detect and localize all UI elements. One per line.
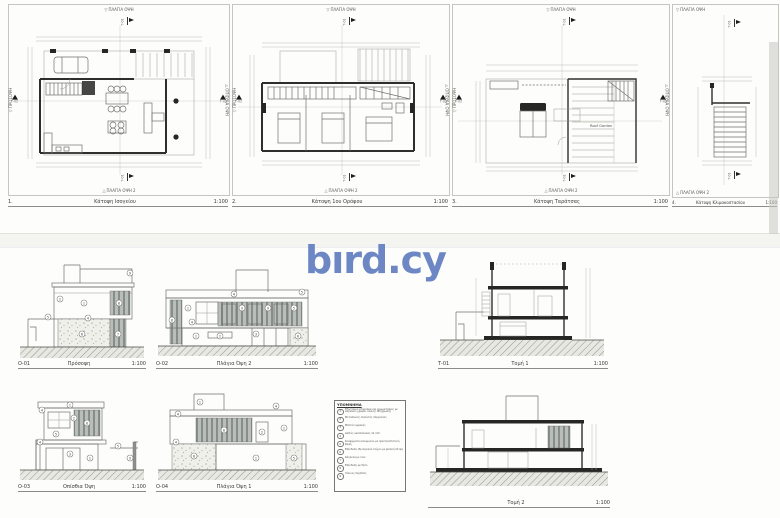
svg-text:6: 6 (297, 334, 299, 338)
elevation-title-o04: Ο-04 Πλάγια Όψη 1 1:100 (156, 484, 318, 492)
svg-text:4: 4 (175, 440, 177, 444)
svg-text:1: 1 (199, 400, 201, 404)
section-flag-label: Τ-01 (343, 174, 347, 181)
elevation-rear: 1 4 2 8 5 4 3 1 5 9 Ο-03 Οπίσθια Όψη 1:1… (18, 392, 146, 492)
triangle-down-icon: ▽ (546, 7, 549, 12)
plan-staircase: ▽ΠΛΑΓΙΑ ΟΨΗ Τ-01 Τ-01 △ΠΛΑΓΙΑ ΟΨΗ 2 (672, 4, 779, 198)
drawing-number: 1. (8, 199, 24, 205)
elevation-marker-top: ▽ΠΛΑΓΙΑ ΟΨΗ (676, 7, 705, 12)
legend-text: Μπετόν εμφανές (345, 425, 366, 428)
section-2-drawing (428, 388, 610, 500)
svg-text:4: 4 (177, 412, 179, 416)
drawing-scale: 1:100 (124, 361, 146, 367)
drawing-title: Κάτοψη 1ου Ορόφου (248, 199, 426, 205)
drawing-number: 3. (452, 199, 468, 205)
section-flag-label: Τ-01 (121, 174, 125, 181)
drawing-title: Τομή 2 (444, 500, 588, 506)
legend-item: 1Εξωτερικό επίχρισμα και χρωματισμός με … (337, 409, 403, 416)
section-marker-label: Τ-02 (220, 100, 227, 104)
staircase-plan-drawing (674, 15, 774, 185)
triangle-up-icon: △ (324, 188, 327, 193)
roof-garden-label: Roof Garden (590, 124, 612, 128)
drawing-scale: 1:100 (206, 199, 228, 205)
legend-item: 3Μπετόν εμφανές (337, 425, 403, 432)
marker-label: ΠΛΑΓΙΑ ΟΨΗ (680, 7, 705, 12)
svg-text:1: 1 (283, 426, 285, 430)
svg-text:9: 9 (267, 306, 269, 310)
elevation-side-1: 1 4 4 8 2 1 4 6 1 5 Ο-04 Πλάγια Όψη 1 1:… (156, 390, 318, 492)
drawing-number: Ο-03 (18, 484, 34, 490)
elevation-marker-top: ▽ΠΛΑΓΙΑ ΟΨΗ (326, 7, 355, 12)
triangle-up-icon: △ (676, 190, 679, 195)
triangle-up-icon: △ (544, 188, 547, 193)
svg-text:2: 2 (261, 430, 263, 434)
legend-text: Μεταλλικός σκελετός πέργκολας (345, 417, 387, 420)
drawing-title: Κάτοψη Ταράτσας (468, 199, 646, 205)
svg-text:2: 2 (73, 416, 75, 420)
triangle-up-icon: △ (102, 188, 105, 193)
svg-text:6: 6 (193, 454, 195, 458)
legend-text: Επένδυση με ξύλο (345, 465, 367, 468)
drawing-number: Ο-01 (18, 361, 34, 367)
drawing-title: Πρόσοψη (34, 361, 124, 367)
marker-label: ΠΛΑΓΙΑ ΟΨΗ (330, 7, 355, 12)
front-elevation-drawing: 2 1 8 4 6 7 5 9 (18, 257, 146, 361)
triangle-down-icon: ▽ (326, 7, 329, 12)
elevation-title-o03: Ο-03 Οπίσθια Όψη 1:100 (18, 484, 146, 492)
svg-text:1: 1 (89, 456, 91, 460)
drawing-title: Οπίσθια Όψη (34, 484, 124, 490)
section-title-2: Τομή 2 1:100 (428, 500, 610, 508)
drawing-scale: 1:100 (586, 361, 608, 367)
scanned-architectural-plans: ▽ΠΛΑΓΙΑ ΟΨΗ Τ-01 ▽ΠΡΟΣΟΨΗ △ΟΠΙΣΘΙΑ ΟΨΗ Τ… (0, 0, 780, 518)
svg-text:4: 4 (275, 404, 277, 408)
triangle-down-icon: ▽ (232, 109, 237, 112)
svg-text:1: 1 (187, 306, 189, 310)
svg-text:4: 4 (191, 320, 193, 324)
legend-item: 8Επένδυση με ξύλο (337, 465, 403, 472)
legend-item: 9Ξύλινες περσίδες (337, 473, 403, 480)
elevation-side-2: 4 5 1 8 9 9 5 4 1 2 3 6 Ο-02 Πλάγια Όψη … (156, 264, 318, 369)
svg-text:9: 9 (129, 456, 131, 460)
svg-text:5: 5 (301, 290, 303, 294)
svg-text:8: 8 (118, 301, 120, 305)
legend-number: 9 (337, 473, 344, 480)
first-floor-plan-drawing (238, 25, 442, 175)
elevation-marker-bottom: △ΠΛΑΓΙΑ ΟΨΗ 2 (544, 188, 577, 193)
drawing-number: 2. (232, 199, 248, 205)
triangle-down-icon: ▽ (452, 109, 457, 112)
drawing-scale: 1:100 (296, 484, 318, 490)
triangle-down-icon: ▽ (104, 7, 107, 12)
svg-text:7: 7 (117, 332, 119, 336)
drawing-scale: 1:100 (296, 361, 318, 367)
section-1: Τ-01 Τομή 1 1:100 (438, 248, 608, 369)
marker-label: ΠΛΑΓΙΑ ΟΨΗ (550, 7, 575, 12)
marker-label: ΠΛΑΓΙΑ ΟΨΗ 2 (329, 188, 358, 193)
legend-number: 5 (337, 441, 344, 448)
legend-item: 4Διπλός υαλοπίνακας 12 mm (337, 433, 403, 440)
plan-title-4: 4. Κάτοψη Κλιμακοστασίου 1:100 (672, 200, 777, 207)
marker-label: ΠΛΑΓΙΑ ΟΨΗ 2 (107, 188, 136, 193)
elevation-front: 2 1 8 4 6 7 5 9 Ο-01 Πρόσοψη 1:100 (18, 257, 146, 369)
rear-elevation-drawing: 1 4 2 8 5 4 3 1 5 9 (18, 392, 146, 484)
legend: ΥΠΟΜΝΗΜΑ 1Εξωτερικό επίχρισμα και χρωματ… (334, 400, 406, 492)
legend-text: Κουφώματα αλουμινίου με ηλεκτροστατική β… (345, 441, 403, 447)
marker-label: ΠΛΑΓΙΑ ΟΨΗ 2 (549, 188, 578, 193)
plan-ground-floor: ▽ΠΛΑΓΙΑ ΟΨΗ Τ-01 ▽ΠΡΟΣΟΨΗ △ΟΠΙΣΘΙΑ ΟΨΗ Τ… (8, 4, 230, 196)
legend-text: Εξωτερικό επίχρισμα και χρωματισμός με α… (345, 409, 403, 415)
marker-label: ΠΛΑΓΙΑ ΟΨΗ (108, 7, 133, 12)
plan-roof-terrace: ▽ΠΛΑΓΙΑ ΟΨΗ Τ-01 ▽ΠΡΟΣΟΨΗ △ΟΠΙΣΘΙΑ ΟΨΗ Τ… (452, 4, 670, 196)
svg-text:5: 5 (293, 306, 295, 310)
side-elevation-1-drawing: 1 4 4 8 2 1 4 6 1 5 (156, 390, 318, 484)
legend-item: 7Κάγκελα με inox (337, 457, 403, 464)
sheet-floor-plans: ▽ΠΛΑΓΙΑ ΟΨΗ Τ-01 ▽ΠΡΟΣΟΨΗ △ΟΠΙΣΘΙΑ ΟΨΗ Τ… (0, 0, 780, 234)
drawing-scale: 1:100 (646, 199, 668, 205)
section-2: Τομή 2 1:100 (428, 388, 610, 508)
section-flag-icon: Τ-01 (561, 17, 576, 25)
svg-text:5: 5 (47, 315, 49, 319)
legend-item: 5Κουφώματα αλουμινίου με ηλεκτροστατική … (337, 441, 403, 448)
legend-number: 2 (337, 417, 344, 424)
plan-first-floor: ▽ΠΛΑΓΙΑ ΟΨΗ Τ-01 ▽ΠΡΟΣΟΨΗ △ΟΠΙΣΘΙΑ ΟΨΗ Τ… (232, 4, 450, 196)
svg-text:4: 4 (39, 440, 41, 444)
section-title-t01: Τ-01 Τομή 1 1:100 (438, 361, 608, 369)
drawing-number: Ο-04 (156, 484, 172, 490)
bird-cy-watermark-logo: bırd.cy (305, 238, 446, 282)
legend-title: ΥΠΟΜΝΗΜΑ (337, 403, 403, 407)
legend-text: Διπλός υαλοπίνακας 12 mm (345, 433, 380, 436)
drawing-title: Πλάγια Όψη 1 (172, 484, 296, 490)
legend-item: 2Μεταλλικός σκελετός πέργκολας (337, 417, 403, 424)
svg-text:8: 8 (223, 428, 225, 432)
legend-number: 3 (337, 425, 344, 432)
svg-text:4: 4 (87, 316, 89, 320)
legend-text: Κάγκελα με inox (345, 457, 365, 460)
svg-text:1: 1 (195, 334, 197, 338)
svg-text:2: 2 (59, 297, 61, 301)
svg-text:3: 3 (69, 452, 71, 456)
drawing-title: Κάτοψη Κλιμακοστασίου (680, 200, 761, 205)
plan-title-2: 2. Κάτοψη 1ου Ορόφου 1:100 (232, 199, 448, 207)
svg-text:8: 8 (171, 318, 173, 322)
scan-edge (769, 42, 778, 234)
elevation-marker-bottom: △ΠΛΑΓΙΑ ΟΨΗ 2 (324, 188, 357, 193)
section-flag-label: Τ-01 (563, 174, 567, 181)
svg-text:2: 2 (219, 334, 221, 338)
legend-text: Επένδυση εξωτερικού τοίχου με φυσική πέτ… (345, 449, 403, 452)
section-marker-t02-right: Τ-02 (220, 95, 227, 104)
legend-text: Ξύλινες περσίδες (345, 473, 367, 476)
triangle-down-icon: ▽ (676, 7, 679, 12)
triangle-up-icon: △ (665, 84, 670, 87)
drawing-number: Τ-01 (438, 361, 454, 367)
triangle-up-icon: △ (225, 84, 230, 87)
drawing-title: Πλάγια Όψη 2 (172, 361, 296, 367)
elevation-title-o01: Ο-01 Πρόσοψη 1:100 (18, 361, 146, 369)
marker-label: ΠΛΑΓΙΑ ΟΨΗ 2 (680, 190, 709, 195)
legend-number: 8 (337, 465, 344, 472)
drawing-number: 4. (672, 200, 680, 205)
legend-number: 4 (337, 433, 344, 440)
drawing-scale: 1:100 (426, 199, 448, 205)
svg-text:8: 8 (86, 421, 88, 425)
svg-text:9: 9 (129, 271, 131, 275)
elevation-marker-bottom: △ΠΛΑΓΙΑ ΟΨΗ 2 (102, 188, 135, 193)
drawing-title: Τομή 1 (454, 361, 586, 367)
svg-text:1: 1 (69, 403, 71, 407)
svg-text:6: 6 (81, 332, 83, 336)
section-1-drawing (438, 248, 608, 361)
drawing-scale: 1:100 (588, 500, 610, 506)
svg-text:1: 1 (83, 301, 85, 305)
legend-number: 6 (337, 449, 344, 456)
legend-item: 6Επένδυση εξωτερικού τοίχου με φυσική πέ… (337, 449, 403, 456)
drawing-title: Κάτοψη Ισογείου (24, 199, 206, 205)
svg-text:4: 4 (41, 408, 43, 412)
svg-text:4: 4 (233, 292, 235, 296)
elevation-marker-bottom: △ΠΛΑΓΙΑ ΟΨΗ 2 (676, 190, 709, 195)
elevation-title-o02: Ο-02 Πλάγια Όψη 2 1:100 (156, 361, 318, 369)
svg-text:9: 9 (241, 306, 243, 310)
triangle-up-icon: △ (445, 84, 450, 87)
svg-text:3: 3 (255, 332, 257, 336)
drawing-scale: 1:100 (124, 484, 146, 490)
svg-text:5: 5 (117, 444, 119, 448)
section-flag-icon: Τ-01 (341, 17, 356, 25)
triangle-down-icon: ▽ (8, 109, 13, 112)
ground-floor-plan-drawing (16, 25, 220, 175)
elevation-marker-top: ▽ΠΛΑΓΙΑ ΟΨΗ (546, 7, 575, 12)
legend-number: 7 (337, 457, 344, 464)
drawing-number: Ο-02 (156, 361, 172, 367)
section-flag-icon: Τ-01 (119, 17, 134, 25)
elevation-marker-top: ▽ΠΛΑΓΙΑ ΟΨΗ (104, 7, 133, 12)
svg-text:5: 5 (55, 432, 57, 436)
svg-text:1: 1 (255, 456, 257, 460)
plan-title-3: 3. Κάτοψη Ταράτσας 1:100 (452, 199, 668, 207)
roof-terrace-plan-drawing: Roof Garden (458, 25, 662, 175)
side-elevation-2-drawing: 4 5 1 8 9 9 5 4 1 2 3 6 (156, 264, 318, 361)
plan-title-1: 1. Κάτοψη Ισογείου 1:100 (8, 199, 228, 207)
legend-number: 1 (337, 409, 344, 416)
svg-text:5: 5 (293, 456, 295, 460)
